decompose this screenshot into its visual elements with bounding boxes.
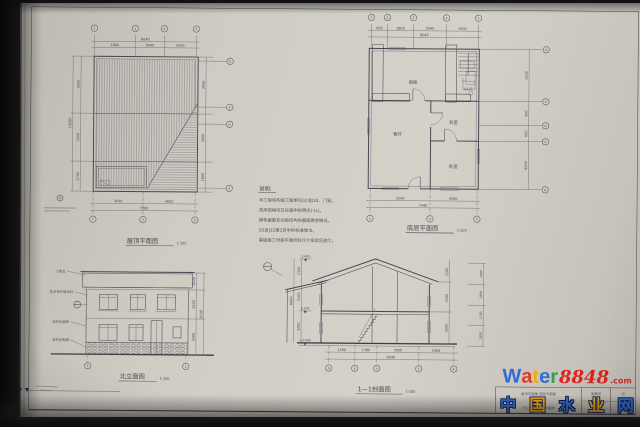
grid-bubble-label: 1 bbox=[369, 217, 371, 221]
dim-label: 2400 bbox=[458, 27, 467, 31]
watermark-hanzi: 网 bbox=[617, 392, 634, 416]
dim-label: 1700 bbox=[479, 311, 483, 319]
dim-label: 1380 bbox=[362, 348, 371, 352]
dim-label: 4050 bbox=[165, 200, 174, 204]
note-line: 02浙J32第2页中的标准做法。 bbox=[259, 227, 317, 234]
dim-label: 8040 bbox=[420, 33, 429, 37]
dim-label: 3000 bbox=[201, 134, 205, 143]
room-label-living: 客厅 bbox=[393, 131, 402, 138]
elevation-title: 北立面图 bbox=[120, 371, 145, 380]
dim-label: 1800 bbox=[479, 332, 483, 340]
drawings-layer: 05 bbox=[0, 0, 640, 427]
watermark-letter: a bbox=[521, 367, 532, 387]
grid-bubble-label: 4 bbox=[163, 27, 165, 31]
dim-label: 3200 bbox=[192, 300, 196, 309]
dim-label: 3040 bbox=[145, 43, 154, 47]
room-label-bedroom2: 卧室 bbox=[449, 163, 458, 170]
grid-bubble-label: 2 bbox=[134, 27, 136, 31]
elevation-scale: 1:100 bbox=[160, 377, 170, 381]
dim-label: 8340 bbox=[387, 355, 396, 359]
dim-label: 900 bbox=[524, 110, 528, 117]
watermark-hanzi: 国 bbox=[529, 392, 546, 416]
note-line: 横条屋面瓦均按结构布置图要求铺设。 bbox=[259, 217, 332, 225]
elevation-annotation: 小青瓦 bbox=[55, 268, 66, 273]
dim-label: 900 bbox=[376, 26, 383, 30]
watermark-site-name: W a t e r 8848 .com bbox=[496, 367, 638, 391]
dim-label: 7080 bbox=[140, 206, 149, 210]
dim-label: 7440 bbox=[419, 204, 428, 208]
section-scale: 1:100 bbox=[406, 390, 416, 394]
note-line: 选用规格均已在图中标明(E)-(L)。 bbox=[259, 207, 324, 215]
dim-label: 8400 bbox=[289, 296, 293, 305]
grid-bubble-label: E bbox=[545, 100, 547, 104]
dim-label: 3200 bbox=[297, 323, 301, 332]
watermark-hanzi: 中 bbox=[500, 392, 517, 416]
dim-label: 4500 bbox=[77, 80, 81, 89]
watermark: W a t e r 8848 .com 中 国 水 业 网 bbox=[496, 367, 638, 415]
section-title: 1—1剖面图 bbox=[358, 384, 391, 393]
grid-bubble-label: 3 bbox=[142, 218, 144, 222]
dim-label: 2100 bbox=[445, 268, 449, 277]
dim-label: 1800 bbox=[396, 26, 405, 30]
elevation-annotation: 乳白色外墙涂料 bbox=[50, 289, 74, 294]
stair bbox=[458, 53, 479, 75]
watermark-letter: r bbox=[550, 367, 558, 387]
dim-label: 8100 bbox=[199, 310, 203, 319]
dim-label: 3600 bbox=[202, 81, 206, 90]
dim-label: 4200 bbox=[176, 44, 185, 48]
grid-bubble-label: 2 bbox=[387, 16, 389, 20]
grid-bubble-label: 3 bbox=[429, 217, 431, 221]
section-1-1: 5.400 3.000 ±0.000 2100 3100 3200 8400 2… bbox=[263, 254, 486, 395]
dim-label: 1500 bbox=[192, 277, 196, 286]
grid-bubble-label: C bbox=[544, 140, 546, 144]
room-label-kitchen: 厨房 bbox=[409, 79, 418, 86]
grid-bubble-label: 3 bbox=[413, 16, 415, 20]
dim-label: 10500 bbox=[68, 118, 72, 129]
dim-label: 2460 bbox=[432, 349, 441, 353]
dim-label: 3030 bbox=[114, 199, 123, 203]
dim-label: 1800 bbox=[110, 43, 119, 47]
dim-label: 1800 bbox=[201, 173, 205, 182]
grid-bubble-label: 1 bbox=[371, 16, 373, 20]
dim-label: 4200 bbox=[449, 197, 458, 201]
watermark-hanzi: 业 bbox=[588, 392, 605, 416]
dim-label: 3200 bbox=[445, 324, 449, 333]
watermark-digits: 8848 bbox=[559, 367, 609, 388]
floor-plan-title: 底层平面图 bbox=[407, 223, 439, 232]
note-line: 基础施工时按平面所标尺寸核实后施工。 bbox=[259, 237, 336, 245]
dim-label: 3100 bbox=[297, 293, 301, 302]
dim-label: 1800 bbox=[479, 291, 483, 299]
elevation-annotation: 深灰色勒脚 bbox=[52, 337, 70, 342]
notes-block: 说明: 本工程结构施工图参见02浙J32、门窗。 选用规格均已在图中标明(E)-… bbox=[258, 185, 337, 245]
watermark-hanzi: 水 bbox=[559, 392, 576, 416]
grid-bubble-label: 5 bbox=[194, 218, 196, 222]
room-label-bedroom1: 卧室 bbox=[449, 119, 458, 126]
stair-direction-label: 上 bbox=[462, 76, 465, 81]
dim-label: 1500 bbox=[525, 71, 529, 80]
grid-bubble-label: 4 bbox=[446, 16, 448, 20]
dim-label: 3100 bbox=[445, 294, 449, 303]
floor-plan-scale: 1:100 bbox=[457, 229, 467, 233]
floor-plan: 厨房 卫生间 客厅 卧室 卧室 上 900 1800 2940 2400 804… bbox=[366, 14, 550, 234]
dim-label: 8040 bbox=[141, 37, 150, 41]
watermark-domain-suffix: .com bbox=[610, 376, 632, 385]
grid-bubble-label: 1 bbox=[185, 365, 187, 369]
binding-page-number: 05 bbox=[6, 406, 12, 412]
dim-label: 3300 bbox=[76, 133, 80, 142]
roof-plan-scale: 1:100 bbox=[177, 241, 187, 245]
grid-bubble-label: 5 bbox=[476, 217, 478, 221]
grid-bubble-label: 1 bbox=[93, 26, 95, 30]
dim-label: 3240 bbox=[396, 196, 405, 200]
note-line: 本工程结构施工图参见02浙J32、门窗。 bbox=[259, 197, 336, 205]
grid-bubble-label: E bbox=[229, 105, 231, 109]
dim-label: 2700 bbox=[76, 172, 80, 181]
dim-label: 2940 bbox=[426, 27, 435, 31]
roof-plan: 8040 1800 3040 4200 1 2 4 5 4500 3300 27… bbox=[44, 25, 234, 247]
watermark-letter: e bbox=[539, 367, 550, 387]
dim-label: 2100 bbox=[297, 267, 301, 276]
room-label-bath: 卫生间 bbox=[463, 86, 472, 91]
watermark-chinese-name: 中 国 水 业 网 bbox=[496, 392, 638, 417]
dim-label: 3400 bbox=[192, 333, 196, 342]
elevation-annotation: 浅灰色面砖 bbox=[52, 319, 70, 324]
photo-of-drawing-sheet: 05 bbox=[0, 0, 640, 427]
level-label: 3.000 bbox=[301, 306, 310, 310]
dim-label: 3000 bbox=[394, 348, 403, 352]
dim-label: 1500 bbox=[338, 348, 347, 352]
grid-bubble-label: C bbox=[418, 367, 420, 371]
grid-bubble-label: E bbox=[354, 366, 356, 370]
dim-label: 1800 bbox=[479, 270, 483, 278]
grid-bubble-label: 5 bbox=[478, 16, 480, 20]
dim-label: 4200 bbox=[524, 161, 528, 170]
grid-bubble-label: 5 bbox=[195, 27, 197, 31]
north-elevation: 小青瓦 乳白色外墙涂料 浅灰色面砖 深灰色勒脚 1500 3200 3400 8… bbox=[49, 268, 215, 381]
watermark-letter: W bbox=[502, 367, 521, 387]
grid-bubble-label: 5 bbox=[87, 364, 89, 368]
grid-bubble-label: 1 bbox=[92, 217, 94, 221]
roof-plan-title: 屋顶平面图 bbox=[127, 237, 159, 245]
notes-heading: 说明: bbox=[259, 185, 272, 193]
level-label: 5.400 bbox=[301, 254, 310, 258]
dim-label: 600 bbox=[524, 130, 528, 137]
